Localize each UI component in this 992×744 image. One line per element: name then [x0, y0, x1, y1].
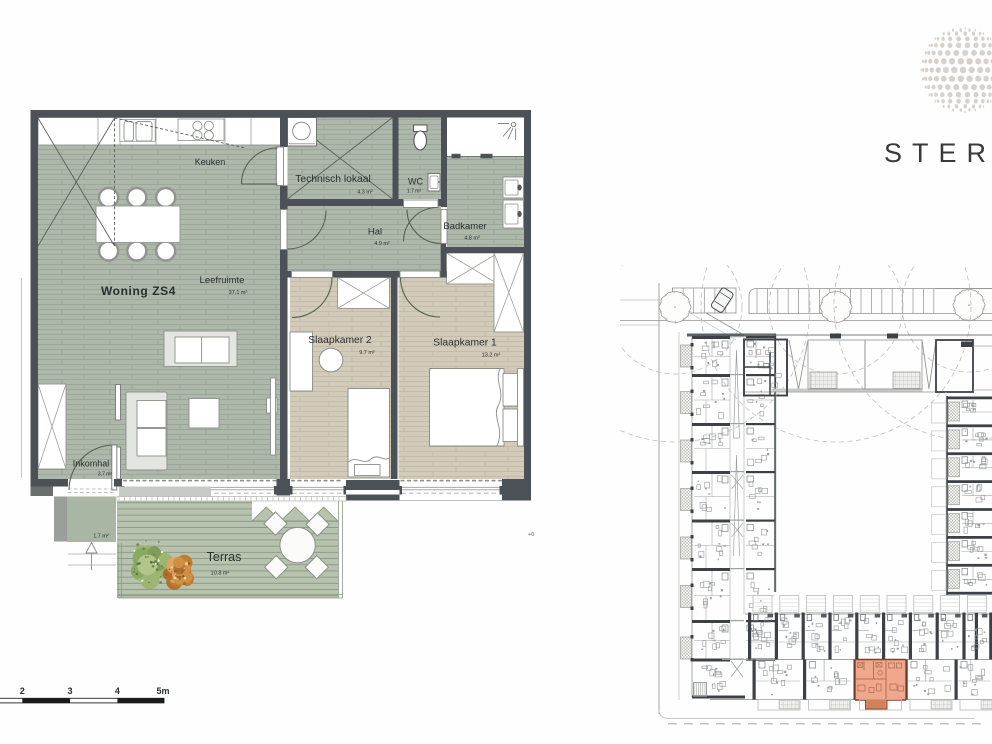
svg-text:Leefruimte: Leefruimte — [200, 275, 245, 286]
svg-text:37.1 m²: 37.1 m² — [229, 290, 248, 296]
svg-text:5m: 5m — [156, 686, 169, 696]
svg-text:4.8 m²: 4.8 m² — [464, 236, 480, 242]
svg-text:Woning ZS4: Woning ZS4 — [101, 284, 176, 298]
svg-text:10.8 m²: 10.8 m² — [211, 571, 230, 577]
svg-text:4.9 m²: 4.9 m² — [374, 241, 390, 247]
svg-text:STER: STER — [884, 138, 992, 168]
svg-text:+0: +0 — [528, 532, 534, 538]
svg-text:Slaapkamer 1: Slaapkamer 1 — [433, 338, 497, 349]
svg-text:Technisch lokaal: Technisch lokaal — [295, 174, 371, 185]
svg-text:1.7 m²: 1.7 m² — [407, 189, 422, 195]
svg-text:WC: WC — [408, 177, 423, 187]
svg-text:Badkamer: Badkamer — [443, 221, 486, 232]
svg-text:1.7 m²: 1.7 m² — [93, 534, 109, 540]
svg-text:3.7 m²: 3.7 m² — [98, 472, 113, 478]
svg-text:Inkomhal: Inkomhal — [73, 459, 110, 469]
svg-text:3: 3 — [67, 686, 72, 696]
svg-text:13.2 m²: 13.2 m² — [482, 353, 501, 359]
svg-text:Keuken: Keuken — [195, 157, 226, 167]
svg-text:Slaapkamer 2: Slaapkamer 2 — [308, 335, 372, 346]
svg-text:4.3 m²: 4.3 m² — [357, 190, 373, 196]
svg-text:9.7 m²: 9.7 m² — [359, 350, 375, 356]
svg-text:2: 2 — [20, 686, 25, 696]
svg-text:Hal: Hal — [368, 227, 382, 238]
svg-text:Terras: Terras — [207, 550, 242, 564]
svg-text:4: 4 — [115, 686, 120, 696]
